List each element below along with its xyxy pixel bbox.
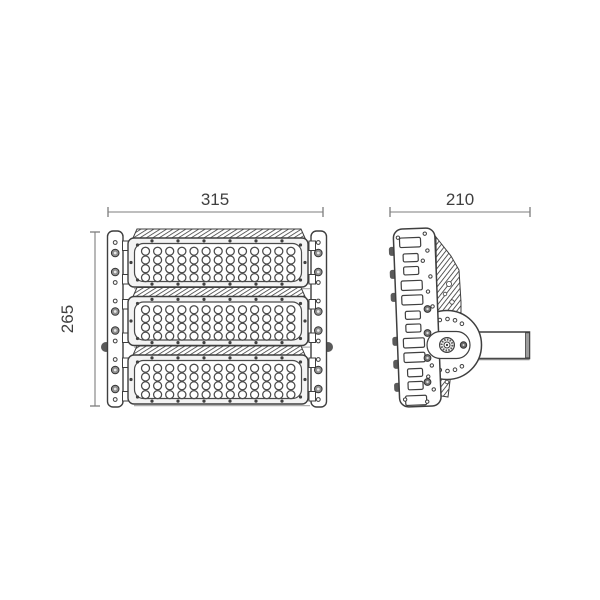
frame-screw [129,378,132,381]
led-lens-dot [190,332,198,340]
led-lens-dot [239,323,247,331]
led-lens-dot [263,315,271,323]
disc-hole [446,369,450,373]
rail-hole [113,299,117,303]
frame-screw [299,278,302,281]
fin-hole [445,380,449,384]
frame-screw [228,356,231,359]
plate-hole [429,275,433,279]
frame-screw [129,319,132,322]
led-lens-dot [263,332,271,340]
frame-screw [150,298,153,301]
led-lens-dot [214,265,222,273]
led-lens-dot [287,274,295,282]
led-lens-dot [287,256,295,264]
frame-screw [202,356,205,359]
frame-screw [150,400,153,403]
frame-screw [299,337,302,340]
frame-screw [202,400,205,403]
led-lens-dot [178,391,186,399]
dimension-front-height: 265 [58,232,100,406]
led-lens-dot [214,364,222,372]
led-lens-dot [287,382,295,390]
led-lens-dot [202,315,210,323]
led-lens-dot [275,315,283,323]
led-lens-dot [154,256,162,264]
drawing-canvas: 315 210 265 [0,0,600,600]
plate-hole [426,290,430,294]
plate-hole [425,400,429,404]
vent-slot-narrow [408,381,423,390]
led-lens-dot [166,332,174,340]
frame-screw [136,302,139,305]
led-lens-dot [202,265,210,273]
led-lens-dot [190,274,198,282]
vent-slot-wide [401,280,422,290]
vent-slot-narrow [405,311,420,320]
led-lens-dot [239,274,247,282]
frame-screw [299,302,302,305]
led-lens-dot [154,265,162,273]
led-lens-dot [275,391,283,399]
left-mounting-rail [108,231,124,407]
frame-screw [176,283,179,286]
led-lens-dot [166,256,174,264]
led-lens-dot [263,382,271,390]
led-lens-dot [287,265,295,273]
frame-screw [176,298,179,301]
led-lens-dot [239,315,247,323]
disc-hole [446,317,450,321]
led-lens-dot [154,391,162,399]
led-lens-dot [263,364,271,372]
led-lens-dot [202,247,210,255]
led-lens-dot [166,315,174,323]
led-lens-dot [178,332,186,340]
led-lens-dot [214,373,222,381]
led-lens-dot [166,247,174,255]
frame-screw [280,341,283,344]
frame-screw [254,400,257,403]
vent-slot-wide [403,338,424,348]
led-lens-dot [190,306,198,314]
led-lens-dot [178,247,186,255]
led-lens-dot [214,306,222,314]
vent-slot-narrow [407,368,422,377]
led-lens-dot [263,323,271,331]
led-lens-dot [251,364,259,372]
frame-screw [136,360,139,363]
led-lens-dot [214,274,222,282]
frame-screw [280,283,283,286]
led-lens-dot [226,265,234,273]
plate-hole [431,305,435,309]
led-lens-dot [251,391,259,399]
led-lens-dot [251,315,259,323]
led-lens-dot [190,315,198,323]
led-lens-dot [190,382,198,390]
led-lens-dot [142,364,150,372]
led-lens-dot [178,315,186,323]
led-lens-dot [202,382,210,390]
led-lens-dot [226,274,234,282]
frame-screw [136,395,139,398]
front-view [101,229,333,407]
led-lens-dot [178,274,186,282]
led-lens-dot [226,315,234,323]
plate-hole [432,388,436,392]
led-lens-dot [275,306,283,314]
front-height-value: 265 [58,305,77,333]
led-lens-dot [263,265,271,273]
frame-screw [202,283,205,286]
rail-hole [316,241,320,245]
rail-hole [316,358,320,362]
led-lens-dot [202,364,210,372]
frame-screw [176,356,179,359]
led-lens-dot [263,256,271,264]
led-lens-dot [154,306,162,314]
module-fins-strip [133,346,305,355]
rail-connector-tab [309,333,316,343]
rail-hole [316,339,320,343]
led-lens-dot [275,274,283,282]
disc-hole [453,319,457,323]
vent-slot-narrow [406,324,421,333]
led-lens-dot [178,323,186,331]
vent-slot-narrow [403,253,418,262]
rail-connector-tab [309,275,316,285]
led-lens-dot [202,332,210,340]
disc-hole [453,368,457,372]
led-lens-dot [142,247,150,255]
frame-screw [254,341,257,344]
led-lens-dot [214,323,222,331]
led-lens-dot [263,306,271,314]
frame-screw [299,395,302,398]
led-lens-dot [251,332,259,340]
led-lens-dot [154,315,162,323]
frame-screw [299,360,302,363]
disc-hole [460,365,464,369]
led-lens-dot [251,247,259,255]
led-lens-dot [226,306,234,314]
frame-screw [228,239,231,242]
frame-screw [228,283,231,286]
fin-hole [443,292,447,296]
led-lens-dot [166,323,174,331]
rail-hole [316,299,320,303]
led-lens-dot [190,265,198,273]
rail-connector-tab [309,300,316,310]
vent-slot-wide [405,395,426,405]
led-lens-dot [263,373,271,381]
led-lens-dot [166,382,174,390]
led-lens-dot [166,391,174,399]
rail-connector-tab [309,392,316,402]
led-lens-dot [226,364,234,372]
frame-screw [136,243,139,246]
plate-hole [430,364,434,368]
led-lens-dot [251,323,259,331]
plate-hole [426,249,430,253]
led-lens-dot [239,256,247,264]
rail-hole [113,281,117,285]
led-lens-dot [142,256,150,264]
right-mounting-rail [311,231,327,407]
led-lens-dot [166,364,174,372]
frame-screw [176,400,179,403]
led-lens-dot [251,274,259,282]
module-fins-strip [133,288,305,297]
vent-slot-narrow [404,266,419,275]
led-lens-dot [214,391,222,399]
rail-hole [316,281,320,285]
led-lens-dot [202,323,210,331]
led-lens-dot [251,306,259,314]
led-lens-dot [226,382,234,390]
led-lens-dot [154,323,162,331]
led-lens-dot [154,332,162,340]
side-view [388,228,529,408]
dimension-side-depth: 210 [390,190,530,217]
led-lens-dot [226,256,234,264]
led-lens-dot [239,306,247,314]
frame-screw [150,239,153,242]
frame-screw [303,261,306,264]
led-lens-dot [142,332,150,340]
led-lens-dot [190,373,198,381]
led-lens-dot [275,332,283,340]
frame-screw [202,298,205,301]
led-lens-dot [154,364,162,372]
fin-hole [446,281,451,286]
led-lens-dot [154,247,162,255]
led-lens-dot [275,364,283,372]
led-lens-dot [214,256,222,264]
led-lens-dot [142,373,150,381]
led-lens-dot [214,332,222,340]
led-lens-dot [178,265,186,273]
frame-screw [254,283,257,286]
led-lens-dot [142,274,150,282]
frame-screw [280,239,283,242]
led-lens-dot [178,382,186,390]
plate-hole [421,259,425,263]
led-lens-dot [202,256,210,264]
frame-screw [202,341,205,344]
rail-connector-tab [309,241,316,251]
frame-screw [228,400,231,403]
led-lens-dot [178,373,186,381]
frame-screw [303,378,306,381]
led-lens-dot [251,265,259,273]
frame-screw [150,283,153,286]
led-modules [111,229,322,406]
led-lens-dot [190,323,198,331]
plate-hole [396,236,400,240]
led-lens-dot [263,247,271,255]
led-lens-dot [251,382,259,390]
rail-hole [316,398,320,402]
led-lens-dot [239,364,247,372]
plate-hole [426,375,430,379]
led-lens-dot [226,323,234,331]
led-lens-dot [190,364,198,372]
led-lens-dot [275,247,283,255]
led-lens-dot [190,247,198,255]
led-lens-dot [202,306,210,314]
disc-hole [460,322,464,326]
frame-screw [202,239,205,242]
led-lens-dot [226,391,234,399]
frame-screw [254,298,257,301]
led-lens-dot [275,323,283,331]
led-lens-dot [214,315,222,323]
front-width-value: 315 [201,190,229,209]
led-lens-dot [154,382,162,390]
frame-screw [136,337,139,340]
led-lens-dot [287,391,295,399]
frame-screw [299,243,302,246]
frame-screw [228,341,231,344]
vent-slot-wide [402,295,423,305]
led-lens-dot [263,391,271,399]
led-lens-dot [226,247,234,255]
led-lens-dot [287,332,295,340]
rail-hole [113,241,117,245]
frame-screw [150,341,153,344]
floodlight-dimension-drawing: 315 210 265 [0,0,600,600]
led-lens-dot [202,373,210,381]
led-lens-dot [142,306,150,314]
led-lens-dot [275,256,283,264]
led-lens-dot [166,306,174,314]
arm-end-cap [526,333,530,358]
pivot-hub [427,332,470,359]
led-lens-dot [239,382,247,390]
led-lens-dot [178,256,186,264]
led-lens-dot [214,247,222,255]
led-lens-dot [239,265,247,273]
led-lens-dot [178,306,186,314]
module-fins-strip [133,229,305,238]
led-lens-dot [251,256,259,264]
frame-screw [150,356,153,359]
side-depth-value: 210 [446,190,474,209]
led-lens-dot [239,247,247,255]
led-lens-dot [239,332,247,340]
led-lens-dot [166,265,174,273]
led-lens-dot [202,274,210,282]
dimension-front-width: 315 [108,190,323,217]
frame-screw [254,239,257,242]
rail-connector-tab [309,358,316,368]
side-body-plate [388,228,441,408]
led-lens-dot [166,274,174,282]
frame-screw [176,341,179,344]
led-lens-dot [239,391,247,399]
frame-screw [129,261,132,264]
led-lens-dot [239,373,247,381]
led-lens-dot [142,323,150,331]
rail-hole [113,398,117,402]
led-lens-dot [226,332,234,340]
led-lens-dot [287,247,295,255]
led-lens-dot [190,256,198,264]
rail-hole [113,339,117,343]
vent-slot-wide [404,352,425,362]
led-lens-dot [142,265,150,273]
led-lens-dot [287,373,295,381]
led-lens-dot [166,373,174,381]
rail-hole [113,358,117,362]
led-lens-dot [142,391,150,399]
led-lens-dot [287,364,295,372]
frame-screw [254,356,257,359]
plate-hole [403,398,407,402]
led-lens-dot [275,373,283,381]
frame-screw [136,278,139,281]
led-lens-dot [263,274,271,282]
led-lens-dot [154,274,162,282]
led-lens-dot [287,323,295,331]
led-lens-dot [142,315,150,323]
fin-hole [450,300,454,304]
led-lens-dot [251,373,259,381]
frame-screw [280,298,283,301]
led-lens-dot [275,382,283,390]
frame-screw [303,319,306,322]
frame-screw [176,239,179,242]
led-lens-dot [226,373,234,381]
led-lens-dot [154,373,162,381]
plate-hole [423,232,427,236]
led-lens-dot [275,265,283,273]
led-lens-dot [287,315,295,323]
led-lens-dot [202,391,210,399]
vent-slot-wide [399,237,420,247]
frame-screw [280,400,283,403]
led-lens-dot [142,382,150,390]
led-lens-dot [287,306,295,314]
led-lens-dot [178,364,186,372]
frame-screw [228,298,231,301]
led-lens-dot [190,391,198,399]
led-lens-dot [214,382,222,390]
frame-screw [280,356,283,359]
